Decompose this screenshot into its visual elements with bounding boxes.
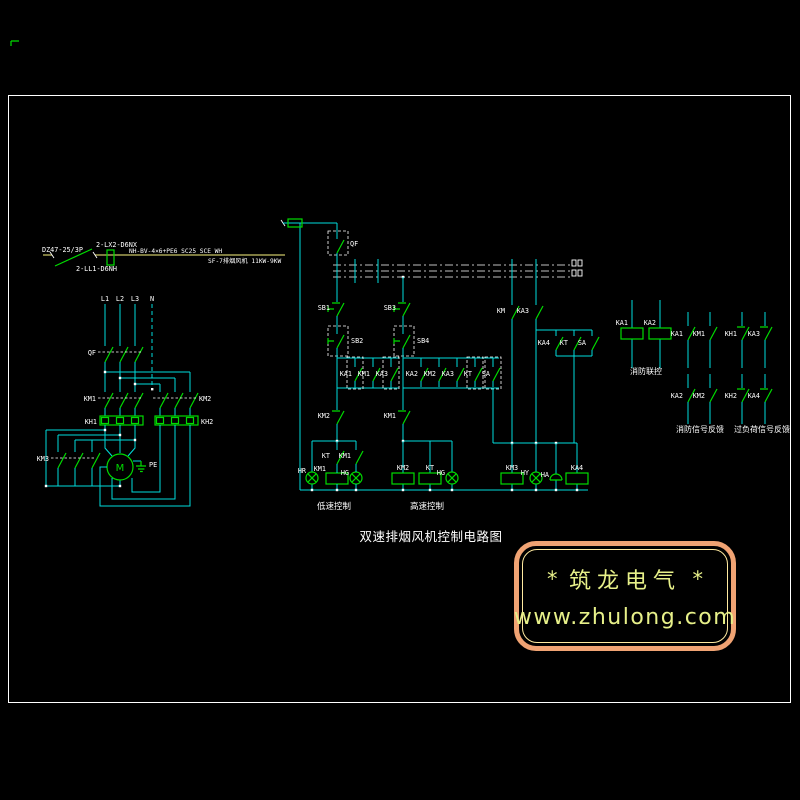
overload-fb-r2c1: KH2: [725, 392, 737, 400]
power-circuit: L1 L2 L3 N QF KM1 KM2 KH1 KH2: [37, 295, 214, 506]
watermark-url: www.zhulong.com: [514, 605, 736, 630]
power-qf-label: QF: [88, 349, 96, 357]
power-pe-label: PE: [149, 461, 157, 469]
fire-fb-r1c2: KM1: [693, 330, 705, 338]
power-km3-label: KM3: [37, 455, 49, 463]
overload-fb-r2c2: KA4: [748, 392, 760, 400]
feeder-cable-spec: NH-BV-4×6+PE6 SC25 SCE WH: [129, 248, 222, 255]
power-km2-label: KM2: [199, 395, 211, 403]
overload-fb-r1c2: KA3: [748, 330, 760, 338]
low-hold-contact-3: KA3: [376, 370, 388, 378]
high-hold-contact-3: KA3: [442, 370, 454, 378]
watermark-star-right: *: [692, 567, 703, 591]
control-qf-aux-label: QF: [350, 240, 358, 248]
feeder-load-spec: SF-7排烟风机 11KW-9KW: [208, 257, 281, 265]
phase-l1: L1: [101, 295, 109, 303]
schematic-svg: DZ47-25/3P 2-LX2-D6NX 2-LL1-D6NH NH-BV-4…: [0, 0, 800, 800]
low-interlock-label: KM2: [318, 412, 330, 420]
signal-panel: KA1 KA2 消防联控 KA1 KM1 KA2 KM2 消防信号反馈 KH1 …: [616, 300, 790, 434]
fire-coil-ka1: KA1: [616, 319, 628, 327]
power-kh2-label: KH2: [201, 418, 213, 426]
cad-canvas: DZ47-25/3P 2-LX2-D6NX 2-LL1-D6NH NH-BV-4…: [0, 0, 800, 800]
mid-contact-km: KM: [497, 307, 505, 315]
low-aux-contact-label: KT: [322, 452, 330, 460]
watermark-box: * 筑龙电气 * www.zhulong.com: [514, 541, 736, 651]
low-start-button-label: SB2: [351, 337, 363, 345]
high-caption: 高速控制: [410, 501, 444, 512]
low-run-contact-label: KM1: [339, 452, 351, 460]
mid-coil-km3: KM3: [506, 464, 518, 472]
high-coil-label: KM2: [397, 464, 409, 472]
mid-lamp-hy: HY: [521, 469, 529, 477]
low-lamp-stop-label: HR: [298, 467, 307, 475]
fire-coil-ka2: KA2: [644, 319, 656, 327]
high-hold-contact-5: SA: [482, 370, 490, 378]
mid-contact-ka3: KA3: [517, 307, 529, 315]
motor-label: M: [116, 463, 125, 474]
feeder-section: DZ47-25/3P 2-LX2-D6NX 2-LL1-D6NH NH-BV-4…: [42, 241, 285, 273]
mid-right-contact-3: SA: [578, 339, 586, 347]
drawing-title: 双速排烟风机控制电路图: [359, 529, 502, 544]
watermark-brand-row: * 筑龙电气 *: [523, 563, 727, 595]
fire-fb-r1c1: KA1: [671, 330, 683, 338]
control-circuit: QF SB1 SB2 KA1 KM1 KA3 KM2 HR KT KM1: [281, 219, 599, 512]
feeder-breaker-label: DZ47-25/3P: [42, 246, 83, 254]
high-stop-button-label: SB3: [384, 304, 396, 312]
high-interlock-label: KM1: [384, 412, 396, 420]
overload-fb-r1c1: KH1: [725, 330, 737, 338]
phase-l3: L3: [131, 295, 139, 303]
phase-n: N: [150, 295, 154, 303]
watermark-star-left: *: [547, 567, 558, 591]
power-kh1-label: KH1: [85, 418, 97, 426]
high-hold-contact-4: KT: [464, 370, 472, 378]
low-stop-button-label: SB1: [318, 304, 330, 312]
mid-bell-ha: HA: [541, 471, 549, 479]
high-hold-contact-2: KM2: [424, 370, 436, 378]
low-hold-contact-2: KM1: [358, 370, 370, 378]
high-lamp-label: HG: [437, 469, 445, 477]
fire-fb-r2c1: KA2: [671, 392, 683, 400]
fire-coils-caption: 消防联控: [630, 366, 662, 376]
low-caption: 低速控制: [317, 501, 351, 512]
fire-fb-r2c2: KM2: [693, 392, 705, 400]
feeder-fuse-spec: 2-LL1-D6NH: [76, 265, 117, 273]
mid-coil-ka4: KA4: [571, 464, 583, 472]
high-start-button-label: SB4: [417, 337, 429, 345]
watermark-brand: 筑龙电气: [569, 563, 681, 595]
high-timer-label: KT: [426, 464, 434, 472]
watermark-inner: * 筑龙电气 * www.zhulong.com: [522, 549, 728, 643]
high-hold-contact-1: KA2: [406, 370, 418, 378]
low-hold-contact-1: KA1: [340, 370, 352, 378]
low-coil-label: KM1: [314, 465, 326, 473]
corner-mark: [11, 41, 19, 46]
phase-l2: L2: [116, 295, 124, 303]
mid-right-contact-1: KA4: [538, 339, 550, 347]
mid-right-contact-2: KT: [560, 339, 568, 347]
overload-fb-caption: 过负荷信号反馈: [734, 424, 790, 434]
low-lamp-run-label: HG: [341, 469, 349, 477]
fire-fb-caption: 消防信号反馈: [676, 424, 724, 434]
power-km1-label: KM1: [84, 395, 96, 403]
